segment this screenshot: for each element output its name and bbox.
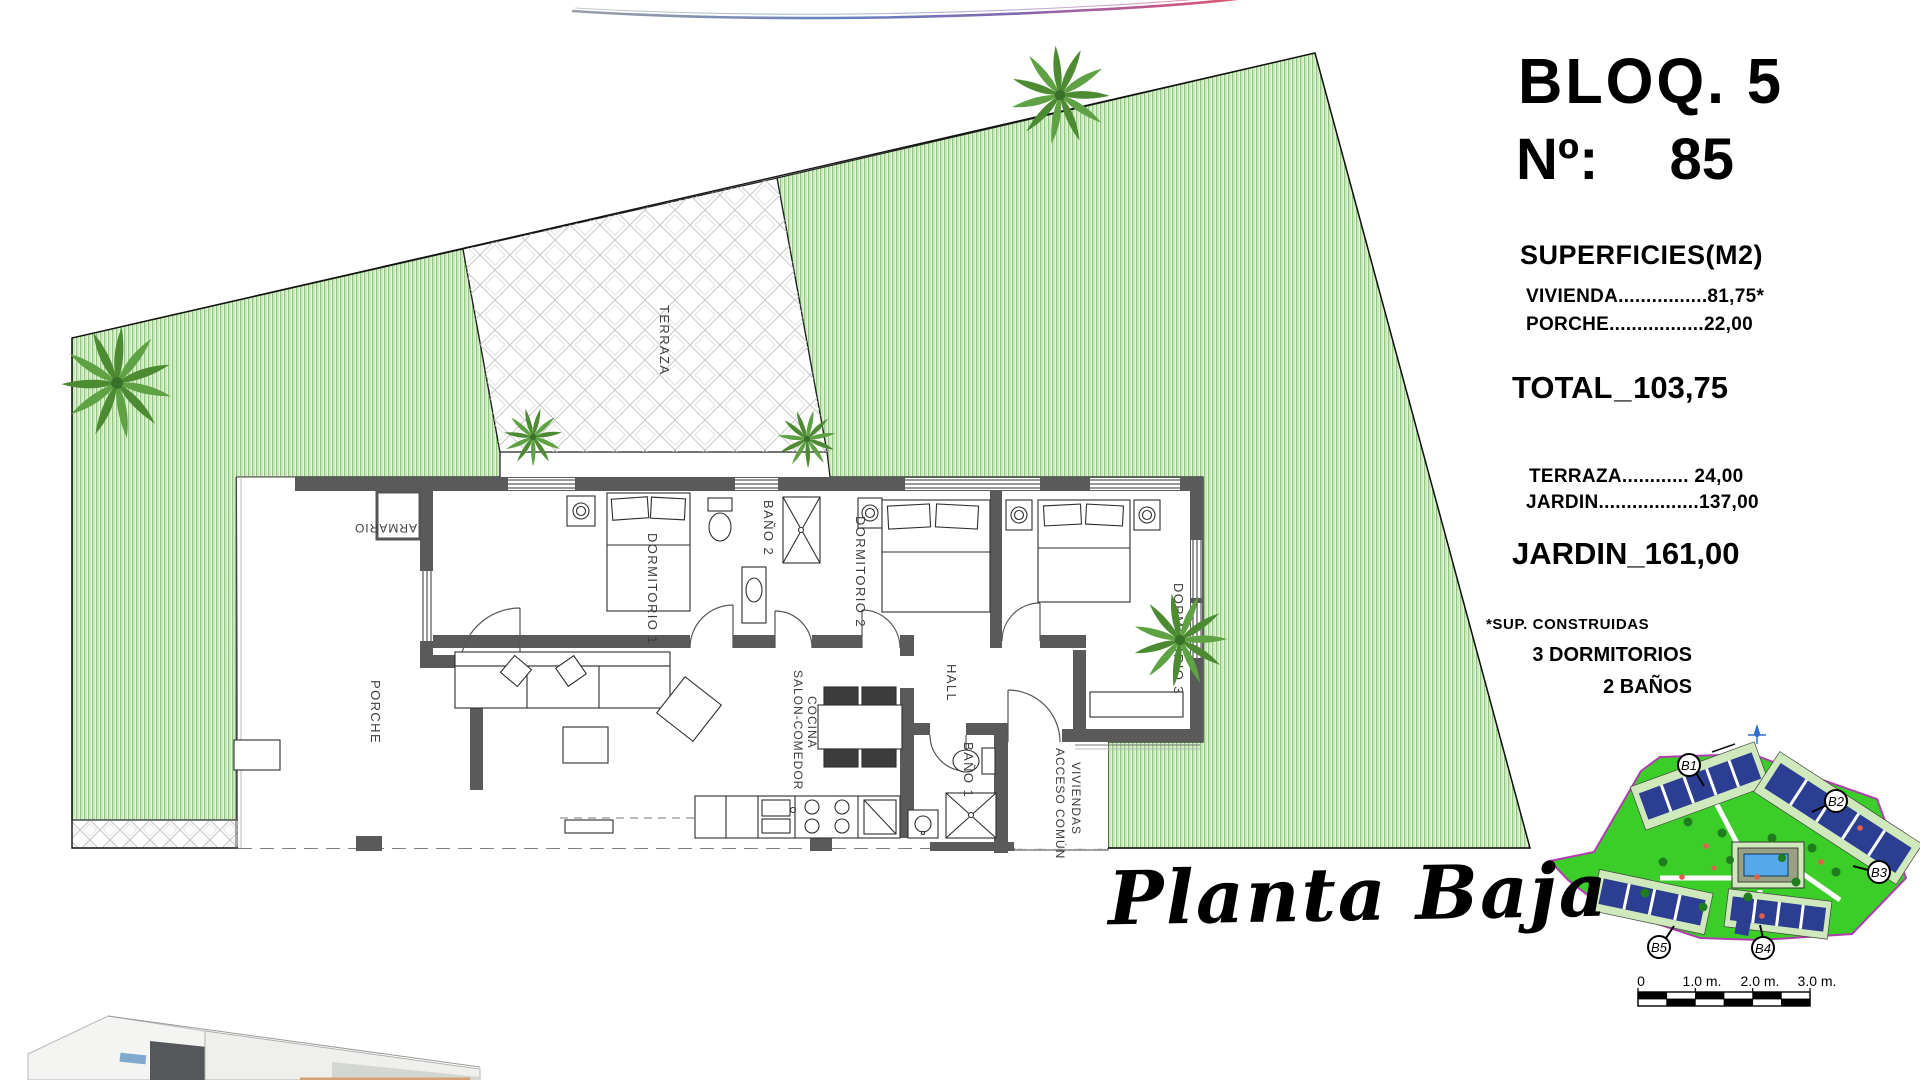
jardin-value: 161,00 [1645, 536, 1740, 572]
area-label: TERRAZA [1529, 466, 1622, 487]
badge-b5: B5 [1651, 940, 1668, 955]
jardin-total-row: JARDIN _ 161,00 [1512, 536, 1730, 572]
area-label: PORCHE [1526, 314, 1609, 335]
total-dash: _ [1614, 370, 1631, 406]
total-label: TOTAL [1512, 370, 1612, 406]
total-value: 103,75 [1633, 370, 1728, 406]
area-label: VIVIENDA [1526, 286, 1618, 307]
superficies-heading: SUPERFICIES(M2) [1520, 240, 1763, 271]
area-row-porche: PORCHE.................22,00 [1526, 314, 1753, 336]
scale-tick-1: 1.0 m. [1683, 973, 1722, 989]
label-armario: ARMARIO [354, 521, 417, 535]
dot-leader: ................ [1618, 286, 1707, 307]
label-terraza: TERRAZA [657, 305, 672, 375]
label-salon-2: COCINA [805, 696, 819, 749]
badge-b3: B3 [1871, 865, 1888, 880]
feature-banos: 2 BAÑOS [1480, 676, 1692, 699]
scale-bar: 0 1.0 m. 2.0 m. 3.0 m. [1637, 973, 1836, 1006]
label-bano2: BAÑO 2 [761, 500, 776, 556]
badge-b1: B1 [1681, 758, 1697, 773]
plan-caption: Planta Baja [1107, 848, 1609, 943]
brand-swoosh [572, 0, 1260, 18]
paved-strip [72, 820, 238, 848]
area-row-terraza: TERRAZA............ 24,00 [1529, 466, 1743, 488]
dot-leader: ............ [1622, 466, 1695, 487]
area-value: 22,00 [1704, 314, 1753, 335]
jardin-label: JARDIN [1512, 536, 1627, 572]
dot-leader: ................. [1609, 314, 1704, 335]
area-value: 24,00 [1694, 466, 1743, 487]
footnote: *SUP. CONSTRUIDAS [1486, 616, 1649, 633]
unit-number-label: Nº: [1516, 126, 1598, 193]
scale-tick-3: 3.0 m. [1798, 973, 1837, 989]
area-row-jardin: JARDIN..................137,00 [1526, 492, 1759, 514]
label-porche: PORCHE [368, 680, 383, 744]
area-value: 81,75* [1707, 286, 1764, 307]
area-label: JARDIN [1526, 492, 1599, 513]
jardin-dash: _ [1627, 536, 1644, 572]
scale-tick-0: 0 [1637, 973, 1645, 989]
label-acceso-1: ACCESO COMÚN [1053, 748, 1068, 859]
badge-b2: B2 [1828, 794, 1845, 809]
label-dormitorio1: DORMITORIO 1 [645, 533, 660, 645]
compass-icon [1748, 724, 1766, 744]
block-title: BLOQ. 5 [1518, 44, 1784, 118]
unit-number-value: 85 [1669, 126, 1734, 193]
label-salon-1: SALON-COMEDOR [791, 670, 805, 790]
area-value: 137,00 [1699, 492, 1759, 513]
label-acceso-2: VIVIENDAS [1069, 762, 1083, 835]
label-bano1: BAÑO 1 [961, 742, 976, 798]
label-dormitorio2: DORMITORIO 2 [853, 516, 868, 628]
badge-b4: B4 [1755, 941, 1771, 956]
plan-sheet: TERRAZA ARMARIO DORMITORIO 1 BAÑO 2 DORM… [0, 0, 1920, 1080]
scale-tick-2: 2.0 m. [1741, 973, 1780, 989]
total-row: TOTAL _ 103,75 [1512, 370, 1728, 406]
building-render [28, 1016, 480, 1080]
unit-number-row: Nº: 85 [1516, 126, 1734, 193]
label-hall: HALL [944, 664, 959, 702]
feature-dormitorios: 3 DORMITORIOS [1480, 644, 1692, 667]
area-row-vivienda: VIVIENDA................81,75* [1526, 286, 1764, 308]
dot-leader: .................. [1599, 492, 1699, 513]
